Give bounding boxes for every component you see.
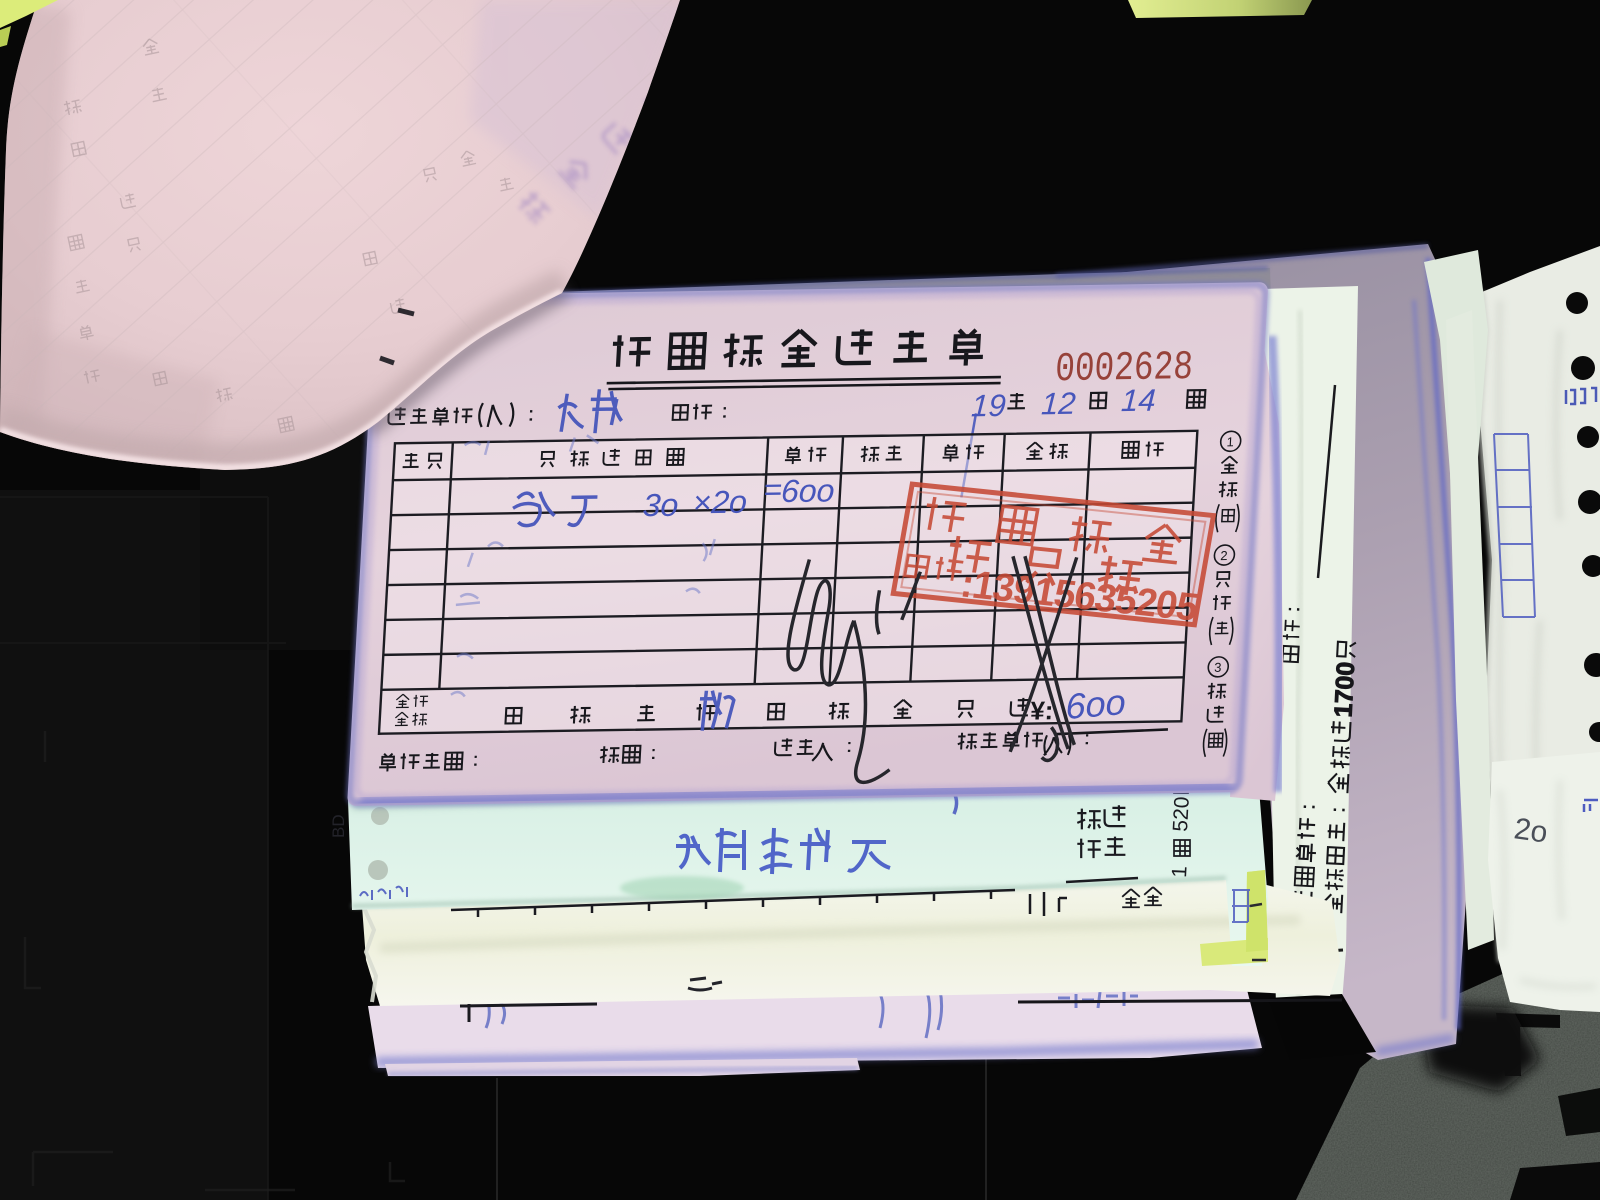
svg-text:×2o: ×2o xyxy=(692,484,748,521)
svg-text:1: 1 xyxy=(1226,434,1234,449)
svg-text:6oo: 6oo xyxy=(780,472,835,509)
svg-text:6oo: 6oo xyxy=(1065,681,1126,727)
svg-text:3: 3 xyxy=(1214,660,1222,675)
svg-text:520: 520 xyxy=(1169,796,1194,832)
svg-text:3o: 3o xyxy=(642,487,680,524)
svg-text:2: 2 xyxy=(1220,548,1228,563)
svg-text:2o: 2o xyxy=(1512,812,1550,849)
svg-text:1: 1 xyxy=(1168,865,1192,878)
svg-text:BD: BD xyxy=(329,814,348,838)
svg-text:1700: 1700 xyxy=(1329,661,1360,718)
svg-text:14: 14 xyxy=(1120,383,1156,419)
svg-text:12: 12 xyxy=(1040,386,1076,422)
